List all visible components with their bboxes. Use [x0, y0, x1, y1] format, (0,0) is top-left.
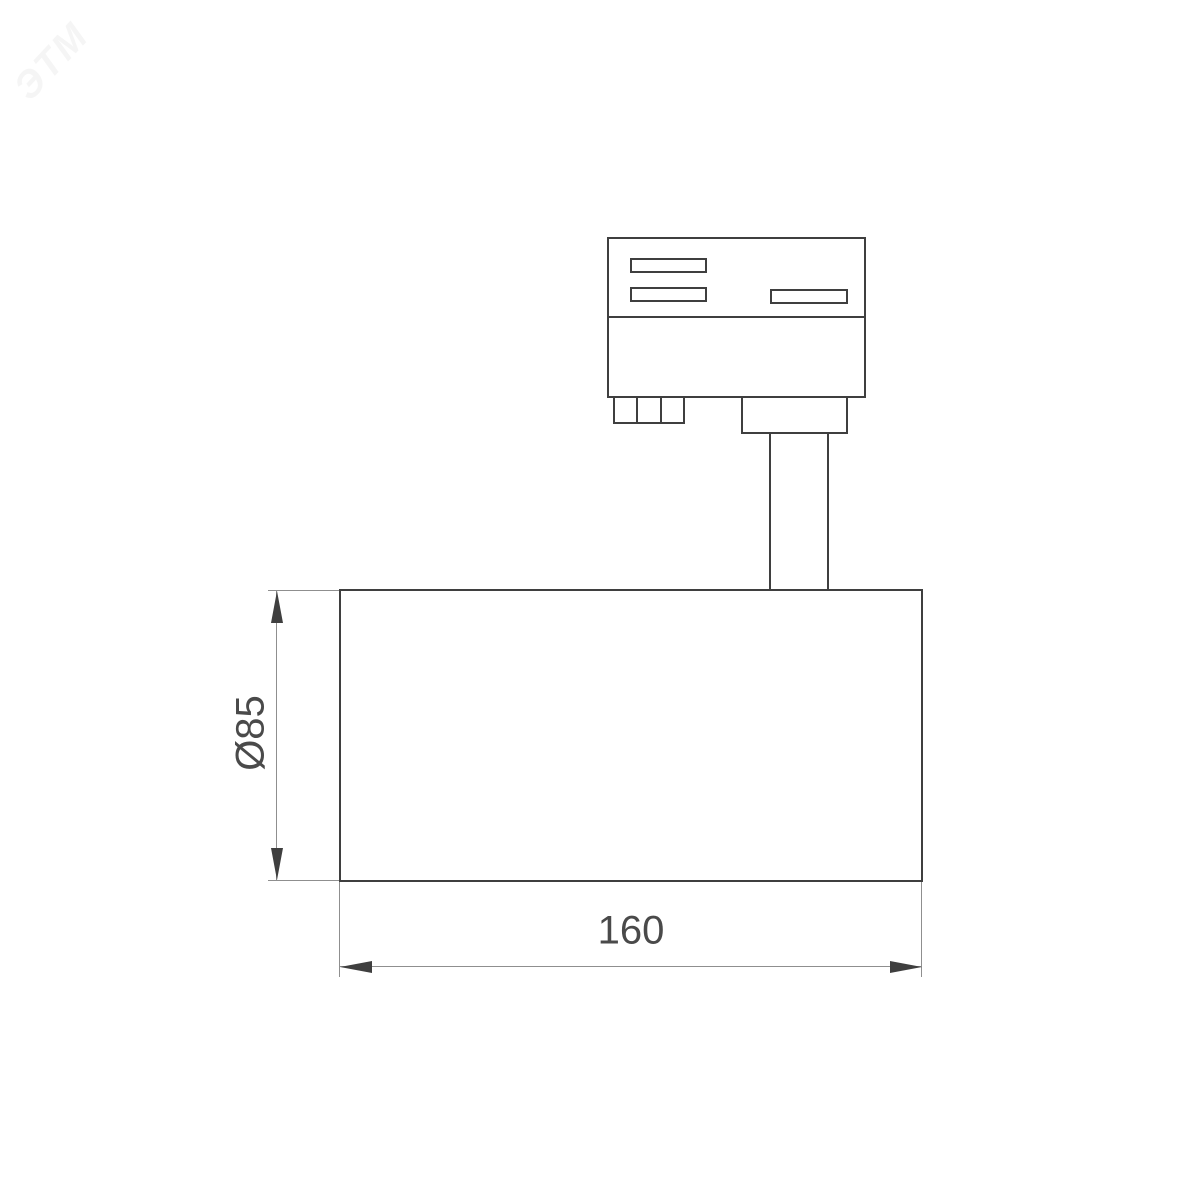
adapter-slot-middle-left	[630, 287, 707, 302]
lamp-body-outline	[339, 589, 923, 882]
diameter-arrowhead-up	[271, 591, 283, 623]
adapter-divider-line	[607, 316, 866, 318]
diameter-extension-line-bottom	[268, 880, 339, 881]
contact-teeth-divider-1	[636, 396, 638, 424]
length-arrowhead-left	[340, 961, 372, 973]
contact-teeth-divider-2	[660, 396, 662, 424]
watermark: ЭТМ	[6, 15, 98, 109]
diameter-dimension-line	[276, 590, 277, 881]
stem-outline	[769, 432, 829, 590]
length-arrowhead-right	[890, 961, 922, 973]
adapter-slot-top-left	[630, 258, 707, 273]
diameter-arrowhead-down	[271, 848, 283, 880]
adapter-contact-teeth-outline	[613, 396, 685, 424]
diameter-dimension-label: Ø85	[229, 695, 274, 771]
stem-connector-outline	[741, 396, 848, 434]
length-dimension-line	[340, 966, 922, 967]
length-dimension-label: 160	[598, 909, 665, 954]
adapter-slot-middle-right	[770, 289, 848, 304]
technical-drawing-canvas: ЭТМ Ø85 160	[0, 0, 1200, 1200]
